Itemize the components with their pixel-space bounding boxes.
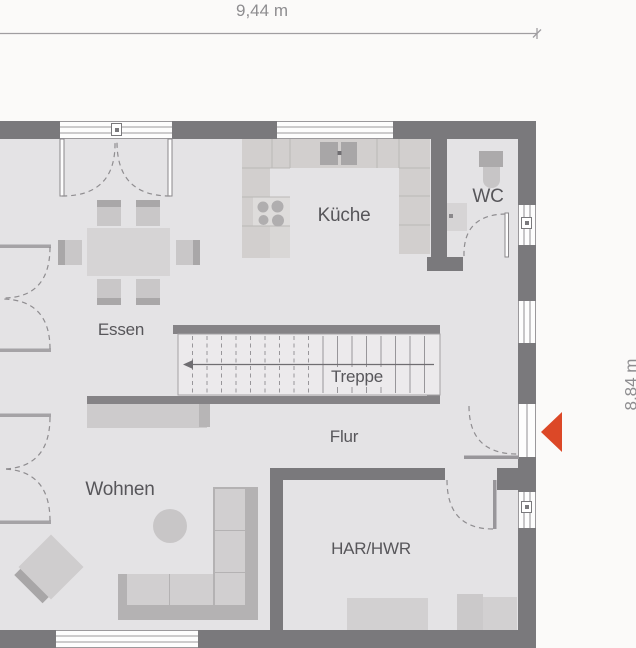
wall-wc-left <box>431 139 447 257</box>
appliance <box>457 594 483 630</box>
sofa-cushion <box>170 574 213 605</box>
kitchen-window <box>277 121 393 139</box>
dining-table <box>87 228 170 276</box>
sofa-cushion <box>127 574 169 605</box>
wall-wc-stub <box>427 257 463 271</box>
cooktop <box>253 197 290 226</box>
dining-chair <box>136 200 160 226</box>
wall-utility-top <box>270 468 445 480</box>
label-dining: Essen <box>98 320 144 340</box>
dining-chair <box>58 240 82 265</box>
stair-newel <box>427 385 440 404</box>
dimension-height-label: 8,84 m <box>622 345 636 425</box>
dining-chair <box>97 279 121 305</box>
label-stairs: Treppe <box>328 367 386 387</box>
window-handle-icon <box>521 217 532 229</box>
living-window <box>56 630 198 648</box>
wall-utility-stub <box>497 468 518 490</box>
round-side-table <box>153 509 187 543</box>
toilet-tank <box>479 151 503 167</box>
label-hallway: Flur <box>330 427 358 447</box>
label-wc: WC <box>472 186 503 208</box>
stair-wall-bottom <box>87 396 437 404</box>
entrance-door-opening <box>518 404 536 457</box>
sideboard <box>87 404 207 428</box>
floor-plan: 9,44 m 8,84 m <box>0 0 636 648</box>
exterior-wall-right <box>518 121 536 648</box>
sofa-cushion <box>215 531 245 572</box>
wall-utility-left <box>270 468 283 630</box>
dining-chair <box>136 279 160 305</box>
sofa-cushion <box>215 489 245 530</box>
dimension-line-top <box>0 28 541 39</box>
entrance-arrow-icon <box>541 412 562 452</box>
dimension-width-label: 9,44 m <box>236 1 288 21</box>
dining-chair <box>97 200 121 226</box>
washbasin-tap <box>449 214 453 218</box>
appliance <box>483 597 517 630</box>
stair-wall-top <box>173 325 440 334</box>
dining-chair <box>176 240 200 265</box>
appliance <box>347 598 428 630</box>
sideboard-end <box>199 404 210 427</box>
window-handle-icon <box>111 123 122 136</box>
kitchen-counter-right <box>399 139 430 254</box>
label-kitchen: Küche <box>318 205 371 227</box>
label-living: Wohnen <box>85 479 154 501</box>
toilet-bowl <box>483 167 500 188</box>
stair-window <box>518 301 536 343</box>
label-utility: HAR/HWR <box>331 539 411 559</box>
sofa-cushion <box>215 573 245 605</box>
window-handle-icon <box>521 501 532 513</box>
